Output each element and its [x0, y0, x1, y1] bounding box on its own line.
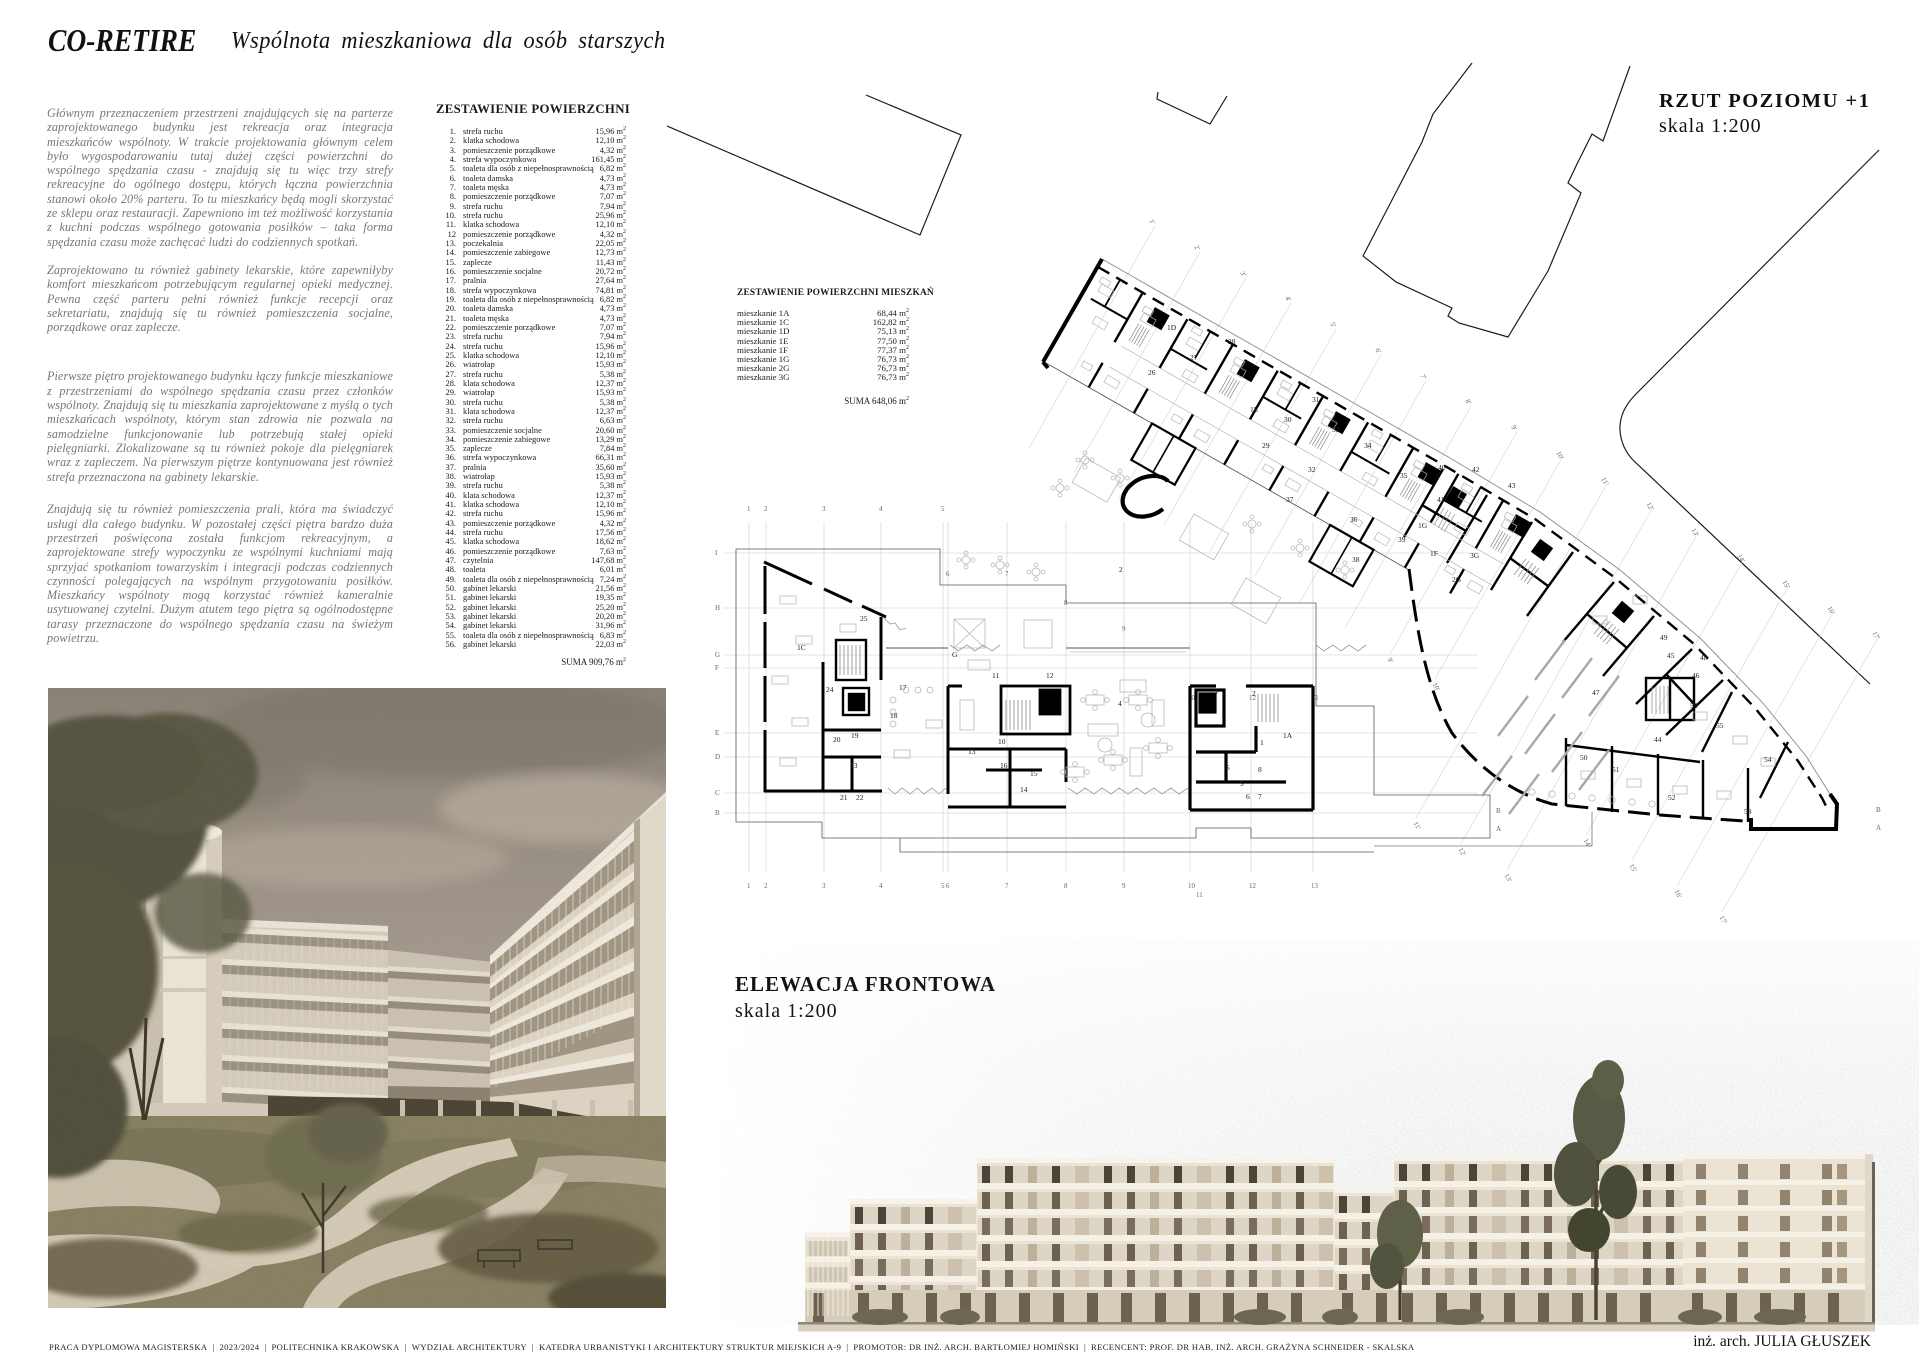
svg-text:18: 18	[890, 711, 898, 720]
svg-text:1C: 1C	[797, 643, 806, 652]
svg-text:2: 2	[764, 882, 768, 890]
svg-text:50: 50	[1580, 753, 1588, 762]
svg-text:13': 13'	[1689, 527, 1700, 538]
svg-text:33: 33	[1332, 425, 1340, 434]
svg-text:43: 43	[1508, 481, 1516, 490]
svg-text:46: 46	[1692, 671, 1700, 680]
svg-text:15': 15'	[1780, 579, 1791, 590]
svg-text:9: 9	[1122, 625, 1126, 633]
svg-text:10: 10	[998, 737, 1006, 746]
svg-text:5': 5'	[1328, 321, 1337, 329]
svg-text:24: 24	[826, 685, 834, 694]
svg-text:15: 15	[1030, 769, 1038, 778]
svg-text:16': 16'	[1825, 605, 1836, 616]
svg-text:5: 5	[1226, 763, 1230, 772]
svg-text:11': 11'	[1412, 820, 1423, 831]
svg-text:16': 16'	[1673, 888, 1684, 899]
svg-text:3: 3	[1214, 687, 1218, 696]
svg-text:3': 3'	[1238, 270, 1247, 278]
svg-text:1: 1	[747, 882, 751, 890]
svg-text:21: 21	[840, 793, 848, 802]
svg-text:9: 9	[1122, 882, 1126, 890]
svg-text:12: 12	[1249, 882, 1257, 890]
svg-text:B: B	[1876, 806, 1881, 814]
svg-text:10': 10'	[1431, 681, 1442, 692]
svg-text:3: 3	[822, 882, 826, 890]
svg-text:6: 6	[1246, 792, 1250, 801]
svg-text:5: 5	[941, 882, 945, 890]
svg-text:14': 14'	[1582, 837, 1593, 848]
svg-text:8': 8'	[1463, 398, 1472, 406]
svg-text:9': 9'	[1386, 656, 1395, 664]
svg-text:55: 55	[1716, 721, 1724, 730]
svg-text:54: 54	[1764, 755, 1772, 764]
svg-text:11': 11'	[1599, 476, 1610, 487]
svg-text:12': 12'	[1457, 846, 1468, 857]
svg-text:26: 26	[1148, 368, 1156, 377]
svg-text:C: C	[715, 789, 720, 797]
svg-text:13: 13	[968, 747, 976, 756]
svg-text:23: 23	[850, 761, 858, 770]
svg-text:17: 17	[899, 683, 907, 692]
svg-text:2: 2	[1252, 689, 1256, 698]
svg-text:39: 39	[1398, 535, 1406, 544]
svg-text:5: 5	[941, 505, 945, 513]
svg-text:2G: 2G	[1452, 575, 1462, 584]
svg-text:28: 28	[1228, 337, 1236, 346]
svg-text:32: 32	[1308, 465, 1316, 474]
svg-text:A: A	[1876, 824, 1881, 832]
svg-text:38: 38	[1352, 555, 1360, 564]
svg-text:14': 14'	[1735, 553, 1746, 564]
svg-text:4: 4	[879, 882, 883, 890]
svg-text:17': 17'	[1870, 630, 1881, 641]
svg-text:3: 3	[822, 505, 826, 513]
svg-text:11: 11	[1196, 891, 1203, 899]
svg-text:17': 17'	[1718, 914, 1729, 925]
svg-text:E: E	[715, 729, 719, 737]
svg-text:3G: 3G	[1470, 551, 1480, 560]
svg-text:25: 25	[860, 614, 868, 623]
svg-text:53: 53	[1744, 807, 1752, 816]
svg-text:13': 13'	[1503, 872, 1514, 883]
svg-text:6: 6	[946, 570, 950, 578]
svg-text:H: H	[715, 604, 720, 612]
svg-text:42: 42	[1472, 465, 1480, 474]
svg-text:2: 2	[764, 505, 768, 513]
svg-text:1F: 1F	[1430, 549, 1438, 558]
svg-text:9: 9	[1240, 779, 1244, 788]
svg-text:B: B	[1496, 807, 1501, 815]
svg-text:10: 10	[1188, 882, 1196, 890]
svg-text:7: 7	[1005, 570, 1009, 578]
svg-text:34: 34	[1364, 441, 1372, 450]
svg-text:49: 49	[1660, 633, 1668, 642]
svg-text:14: 14	[1020, 785, 1028, 794]
svg-text:4: 4	[879, 505, 883, 513]
svg-text:F: F	[715, 664, 719, 672]
svg-text:48: 48	[1700, 653, 1708, 662]
svg-text:1': 1'	[1147, 218, 1156, 226]
svg-text:1A: 1A	[1283, 731, 1293, 740]
svg-text:45: 45	[1667, 651, 1675, 660]
svg-text:7: 7	[1005, 882, 1009, 890]
svg-text:D: D	[715, 753, 720, 761]
svg-text:27: 27	[1190, 353, 1198, 362]
svg-text:12': 12'	[1644, 501, 1655, 512]
svg-text:12: 12	[1046, 671, 1054, 680]
svg-text:51: 51	[1612, 765, 1620, 774]
svg-text:36: 36	[1350, 515, 1358, 524]
svg-text:4': 4'	[1283, 295, 1292, 303]
svg-text:10': 10'	[1554, 450, 1565, 461]
svg-text:41: 41	[1437, 495, 1445, 504]
svg-text:15': 15'	[1628, 862, 1639, 873]
svg-text:30: 30	[1284, 415, 1292, 424]
svg-text:9': 9'	[1509, 424, 1518, 432]
svg-text:47: 47	[1592, 688, 1600, 697]
svg-text:1D: 1D	[1167, 323, 1177, 332]
svg-text:22: 22	[856, 793, 864, 802]
svg-text:31: 31	[1312, 395, 1320, 404]
svg-text:35: 35	[1400, 471, 1408, 480]
svg-text:8: 8	[1064, 882, 1068, 890]
svg-text:40: 40	[1438, 463, 1446, 472]
svg-text:I: I	[715, 549, 718, 557]
svg-text:13: 13	[1311, 882, 1319, 890]
svg-text:7: 7	[1258, 792, 1262, 801]
svg-text:44: 44	[1654, 735, 1662, 744]
svg-text:G: G	[952, 650, 958, 659]
svg-text:2: 2	[1119, 565, 1123, 574]
svg-text:6: 6	[946, 882, 950, 890]
svg-text:1: 1	[747, 505, 751, 513]
svg-text:8: 8	[1258, 765, 1262, 774]
svg-text:1E: 1E	[1250, 405, 1259, 414]
svg-text:52: 52	[1668, 793, 1676, 802]
svg-text:16: 16	[1000, 761, 1008, 770]
svg-text:2': 2'	[1192, 244, 1201, 252]
svg-text:1G: 1G	[1418, 521, 1428, 530]
svg-text:1: 1	[1260, 738, 1264, 747]
svg-text:G: G	[715, 651, 720, 659]
svg-text:29: 29	[1262, 441, 1270, 450]
svg-text:7': 7'	[1418, 373, 1427, 381]
svg-text:20: 20	[833, 735, 841, 744]
svg-text:56: 56	[1690, 701, 1698, 710]
svg-text:6': 6'	[1373, 347, 1382, 355]
svg-text:19: 19	[851, 731, 859, 740]
svg-text:B: B	[715, 809, 720, 817]
svg-text:11: 11	[992, 671, 999, 680]
svg-text:37: 37	[1286, 495, 1294, 504]
svg-text:A: A	[1496, 825, 1501, 833]
svg-text:4: 4	[1118, 699, 1122, 708]
